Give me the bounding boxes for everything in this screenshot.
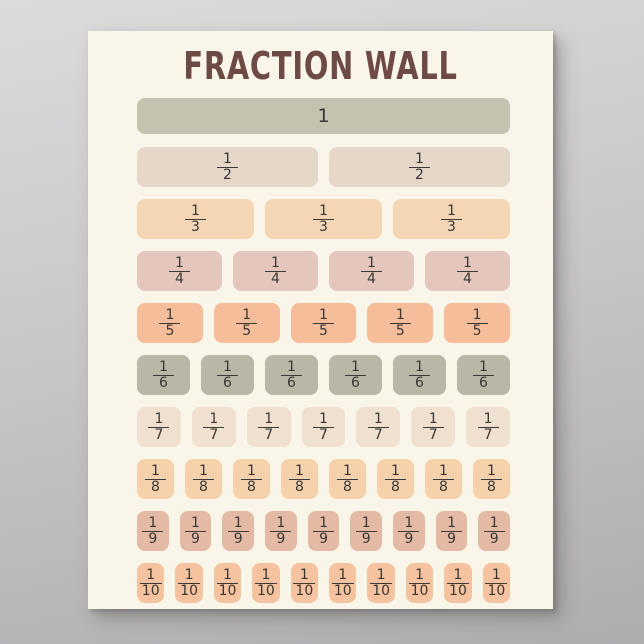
fraction-brick-1-8: 18 [281, 459, 318, 499]
fraction-brick-1-10: 110 [483, 563, 510, 603]
fraction-label: 110 [447, 568, 469, 598]
fraction-row-7ths: 17171717171717 [137, 407, 510, 447]
fraction-denominator: 7 [148, 427, 169, 443]
fraction-numerator: 1 [259, 568, 272, 583]
fraction-brick-1-5: 15 [291, 303, 357, 343]
fraction-label: 110 [293, 568, 315, 598]
fraction-brick-1-10: 110 [444, 563, 471, 603]
fraction-denominator: 8 [433, 479, 454, 495]
fraction-brick-1-9: 19 [350, 511, 382, 551]
fraction-brick-1-9: 19 [478, 511, 510, 551]
fraction-denominator: 4 [457, 271, 478, 287]
fraction-brick-1-9: 19 [308, 511, 340, 551]
fraction-row-6ths: 161616161616 [137, 355, 510, 395]
fraction-numerator: 1 [185, 516, 206, 531]
fraction-brick-1-8: 18 [425, 459, 462, 499]
fraction-numerator: 1 [385, 464, 406, 479]
fraction-label: 19 [484, 516, 505, 546]
fraction-label: 12 [217, 152, 238, 182]
fraction-denominator: 3 [313, 219, 334, 235]
fraction-label: 110 [332, 568, 354, 598]
fraction-brick-1-9: 19 [137, 511, 169, 551]
fraction-label: 14 [361, 256, 382, 286]
fraction-brick-1-7: 17 [466, 407, 510, 447]
fraction-numerator: 1 [228, 516, 249, 531]
fraction-brick-1-8: 18 [473, 459, 510, 499]
fraction-label: 16 [281, 360, 302, 390]
fraction-brick-1-2: 12 [137, 147, 318, 187]
fraction-label: 16 [153, 360, 174, 390]
fraction-brick-1-8: 18 [137, 459, 174, 499]
fraction-brick-1-4: 14 [137, 251, 222, 291]
fraction-label: 18 [145, 464, 166, 494]
fraction-brick-1-9: 19 [222, 511, 254, 551]
fraction-brick-1-8: 18 [377, 459, 414, 499]
fraction-numerator: 1 [413, 568, 426, 583]
fraction-label: 110 [178, 568, 200, 598]
fraction-brick-1-10: 110 [406, 563, 433, 603]
fraction-denominator: 7 [423, 427, 444, 443]
fraction-row-10ths: 110110110110110110110110110110 [137, 563, 510, 603]
fraction-brick-1-5: 15 [367, 303, 433, 343]
fraction-numerator: 1 [398, 516, 419, 531]
fraction-denominator: 8 [337, 479, 358, 495]
fraction-brick-1-7: 17 [137, 407, 181, 447]
fraction-denominator: 8 [289, 479, 310, 495]
fraction-numerator: 1 [473, 360, 494, 375]
fraction-numerator: 1 [478, 412, 499, 427]
fraction-denominator: 10 [293, 583, 315, 599]
fraction-brick-1-5: 15 [137, 303, 203, 343]
fraction-label: 19 [356, 516, 377, 546]
fraction-denominator: 10 [370, 583, 392, 599]
fraction-denominator: 9 [484, 531, 505, 547]
fraction-label: 18 [241, 464, 262, 494]
fraction-label: 110 [370, 568, 392, 598]
fraction-label: 17 [368, 412, 389, 442]
fraction-brick-1-9: 19 [436, 511, 468, 551]
fraction-label: 19 [185, 516, 206, 546]
fraction-label: 19 [142, 516, 163, 546]
fraction-label: 18 [289, 464, 310, 494]
fraction-numerator: 1 [356, 516, 377, 531]
fraction-numerator: 1 [409, 360, 430, 375]
fraction-denominator: 10 [140, 583, 162, 599]
fraction-label: 13 [185, 204, 206, 234]
fraction-denominator: 10 [409, 583, 431, 599]
fraction-label: 15 [313, 308, 334, 338]
fraction-brick-1-2: 12 [329, 147, 510, 187]
fraction-label: 17 [203, 412, 224, 442]
fraction-denominator: 6 [345, 375, 366, 391]
fraction-label: 13 [441, 204, 462, 234]
fraction-denominator: 9 [270, 531, 291, 547]
fraction-denominator: 7 [313, 427, 334, 443]
fraction-numerator: 1 [336, 568, 349, 583]
fraction-brick-1-10: 110 [214, 563, 241, 603]
fraction-label: 15 [159, 308, 180, 338]
fraction-numerator: 1 [375, 568, 388, 583]
fraction-numerator: 1 [203, 412, 224, 427]
fraction-numerator: 1 [441, 204, 462, 219]
fraction-denominator: 5 [236, 323, 257, 339]
fraction-denominator: 9 [356, 531, 377, 547]
fraction-label: 18 [481, 464, 502, 494]
fraction-label: 14 [169, 256, 190, 286]
fraction-numerator: 1 [451, 568, 464, 583]
fraction-brick-1-10: 110 [329, 563, 356, 603]
fraction-numerator: 1 [217, 360, 238, 375]
fraction-numerator: 1 [169, 256, 190, 271]
fraction-brick-1-9: 19 [265, 511, 297, 551]
fraction-denominator: 10 [178, 583, 200, 599]
fraction-brick-1-4: 14 [425, 251, 510, 291]
fraction-brick-1-7: 17 [192, 407, 236, 447]
fraction-numerator: 1 [281, 360, 302, 375]
fraction-label: 19 [228, 516, 249, 546]
fraction-brick-1-4: 14 [233, 251, 318, 291]
fraction-denominator: 7 [203, 427, 224, 443]
fraction-numerator: 1 [313, 308, 334, 323]
fraction-label: 110 [140, 568, 162, 598]
fraction-denominator: 4 [265, 271, 286, 287]
fraction-brick-1-9: 19 [180, 511, 212, 551]
fraction-label: 17 [478, 412, 499, 442]
fraction-denominator: 2 [217, 167, 238, 183]
fraction-brick-1-6: 16 [457, 355, 510, 395]
fraction-numerator: 1 [193, 464, 214, 479]
fraction-numerator: 1 [368, 412, 389, 427]
fraction-numerator: 1 [289, 464, 310, 479]
fraction-denominator: 5 [313, 323, 334, 339]
fraction-brick-1-9: 19 [393, 511, 425, 551]
fraction-label: 18 [433, 464, 454, 494]
fraction-label: 19 [441, 516, 462, 546]
fraction-brick-1-8: 18 [329, 459, 366, 499]
fraction-denominator: 3 [441, 219, 462, 235]
whole-brick: 1 [137, 98, 510, 134]
fraction-numerator: 1 [145, 464, 166, 479]
fraction-label: 16 [473, 360, 494, 390]
fraction-numerator: 1 [467, 308, 488, 323]
fraction-denominator: 10 [217, 583, 239, 599]
fraction-label: 17 [423, 412, 444, 442]
fraction-brick-1-10: 110 [291, 563, 318, 603]
fraction-numerator: 1 [236, 308, 257, 323]
fraction-denominator: 8 [145, 479, 166, 495]
fraction-numerator: 1 [153, 360, 174, 375]
fraction-numerator: 1 [144, 568, 157, 583]
fraction-denominator: 9 [441, 531, 462, 547]
fraction-denominator: 6 [153, 375, 174, 391]
fraction-numerator: 1 [142, 516, 163, 531]
fraction-brick-1-10: 110 [137, 563, 164, 603]
fraction-numerator: 1 [484, 516, 505, 531]
fraction-label: 19 [270, 516, 291, 546]
fraction-denominator: 2 [409, 167, 430, 183]
fraction-label: 14 [457, 256, 478, 286]
fraction-denominator: 5 [390, 323, 411, 339]
fraction-denominator: 10 [447, 583, 469, 599]
fraction-label: 13 [313, 204, 334, 234]
fraction-numerator: 1 [270, 516, 291, 531]
fraction-label: 110 [255, 568, 277, 598]
fraction-denominator: 4 [169, 271, 190, 287]
fraction-numerator: 1 [221, 568, 234, 583]
fraction-denominator: 9 [398, 531, 419, 547]
fraction-brick-1-8: 18 [185, 459, 222, 499]
fraction-brick-1-4: 14 [329, 251, 414, 291]
fraction-brick-1-6: 16 [393, 355, 446, 395]
fraction-brick-1-6: 16 [201, 355, 254, 395]
fraction-label: 18 [193, 464, 214, 494]
fraction-label: 15 [236, 308, 257, 338]
fraction-brick-1-6: 16 [329, 355, 382, 395]
fraction-denominator: 3 [185, 219, 206, 235]
fraction-label: 110 [217, 568, 239, 598]
fraction-wall: 1121213131314141414151515151516161616161… [137, 98, 510, 615]
fraction-numerator: 1 [337, 464, 358, 479]
fraction-denominator: 5 [159, 323, 180, 339]
fraction-numerator: 1 [390, 308, 411, 323]
fraction-denominator: 7 [368, 427, 389, 443]
fraction-numerator: 1 [441, 516, 462, 531]
fraction-numerator: 1 [217, 152, 238, 167]
fraction-label: 17 [313, 412, 334, 442]
fraction-numerator: 1 [265, 256, 286, 271]
fraction-row-3ths: 131313 [137, 199, 510, 239]
fraction-numerator: 1 [481, 464, 502, 479]
fraction-numerator: 1 [185, 204, 206, 219]
fraction-brick-1-7: 17 [302, 407, 346, 447]
fraction-label: 15 [467, 308, 488, 338]
fraction-numerator: 1 [183, 568, 196, 583]
fraction-label: 14 [265, 256, 286, 286]
fraction-label: 110 [409, 568, 431, 598]
fraction-numerator: 1 [148, 412, 169, 427]
fraction-brick-1-6: 16 [137, 355, 190, 395]
fraction-brick-1-7: 17 [411, 407, 455, 447]
fraction-brick-1-7: 17 [356, 407, 400, 447]
fraction-brick-1-6: 16 [265, 355, 318, 395]
fraction-brick-1-3: 13 [265, 199, 382, 239]
fraction-wall-poster: FRACTION WALL 11212131313141414141515151… [88, 31, 553, 609]
fraction-label: 19 [398, 516, 419, 546]
fraction-denominator: 10 [255, 583, 277, 599]
fraction-numerator: 1 [258, 412, 279, 427]
fraction-numerator: 1 [313, 516, 334, 531]
fraction-denominator: 6 [473, 375, 494, 391]
fraction-denominator: 9 [142, 531, 163, 547]
fraction-denominator: 8 [481, 479, 502, 495]
fraction-denominator: 4 [361, 271, 382, 287]
fraction-denominator: 6 [281, 375, 302, 391]
fraction-label: 18 [337, 464, 358, 494]
fraction-label: 18 [385, 464, 406, 494]
fraction-denominator: 10 [332, 583, 354, 599]
fraction-label: 17 [258, 412, 279, 442]
fraction-numerator: 1 [361, 256, 382, 271]
fraction-label: 16 [409, 360, 430, 390]
fraction-numerator: 1 [298, 568, 311, 583]
fraction-numerator: 1 [241, 464, 262, 479]
fraction-numerator: 1 [409, 152, 430, 167]
fraction-brick-1-5: 15 [444, 303, 510, 343]
fraction-label: 16 [217, 360, 238, 390]
fraction-denominator: 7 [478, 427, 499, 443]
fraction-numerator: 1 [159, 308, 180, 323]
fraction-label: 19 [313, 516, 334, 546]
fraction-denominator: 6 [409, 375, 430, 391]
wall-background: FRACTION WALL 11212131313141414141515151… [0, 0, 644, 644]
fraction-row-9ths: 191919191919191919 [137, 511, 510, 551]
fraction-row-5ths: 1515151515 [137, 303, 510, 343]
fraction-denominator: 7 [258, 427, 279, 443]
fraction-denominator: 6 [217, 375, 238, 391]
fraction-brick-1-10: 110 [175, 563, 202, 603]
fraction-numerator: 1 [433, 464, 454, 479]
poster-title: FRACTION WALL [144, 44, 497, 88]
fraction-numerator: 1 [345, 360, 366, 375]
fraction-label: 17 [148, 412, 169, 442]
fraction-label: 15 [390, 308, 411, 338]
fraction-brick-1-10: 110 [367, 563, 394, 603]
fraction-denominator: 9 [228, 531, 249, 547]
fraction-label: 110 [485, 568, 507, 598]
fraction-brick-1-3: 13 [137, 199, 254, 239]
fraction-denominator: 5 [467, 323, 488, 339]
fraction-denominator: 9 [185, 531, 206, 547]
fraction-row-8ths: 1818181818181818 [137, 459, 510, 499]
fraction-denominator: 8 [193, 479, 214, 495]
fraction-numerator: 1 [457, 256, 478, 271]
fraction-label: 12 [409, 152, 430, 182]
fraction-denominator: 8 [385, 479, 406, 495]
fraction-denominator: 9 [313, 531, 334, 547]
fraction-denominator: 10 [485, 583, 507, 599]
fraction-denominator: 8 [241, 479, 262, 495]
fraction-brick-1-3: 13 [393, 199, 510, 239]
fraction-brick-1-7: 17 [247, 407, 291, 447]
fraction-row-4ths: 14141414 [137, 251, 510, 291]
fraction-label: 16 [345, 360, 366, 390]
fraction-numerator: 1 [423, 412, 444, 427]
fraction-numerator: 1 [313, 204, 334, 219]
fraction-brick-1-8: 18 [233, 459, 270, 499]
fraction-numerator: 1 [313, 412, 334, 427]
fraction-row-whole: 1 [137, 98, 510, 134]
fraction-brick-1-10: 110 [252, 563, 279, 603]
fraction-row-2ths: 1212 [137, 147, 510, 187]
fraction-numerator: 1 [490, 568, 503, 583]
fraction-brick-1-5: 15 [214, 303, 280, 343]
